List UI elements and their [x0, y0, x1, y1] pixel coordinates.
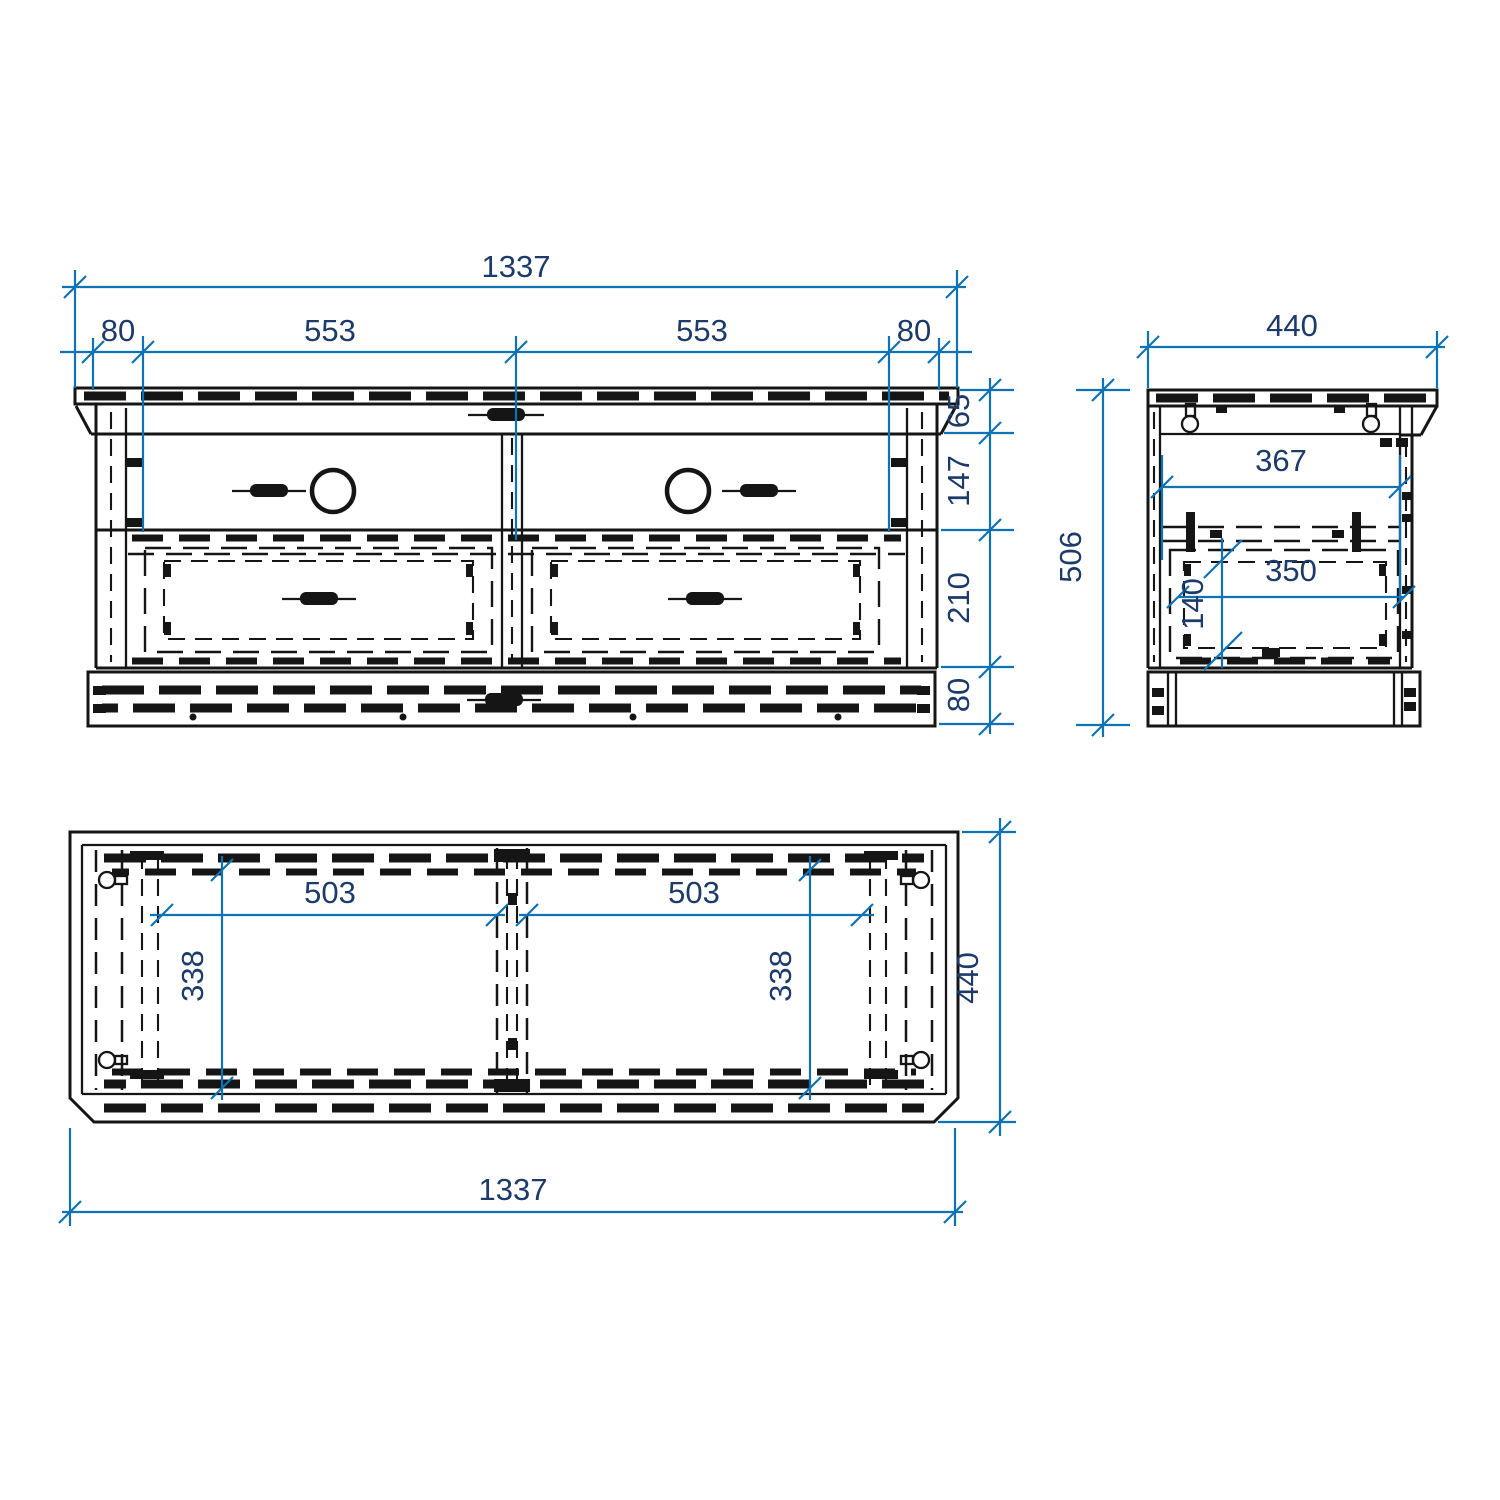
dim-top-left-bay-depth: 338: [175, 950, 210, 1002]
top-view: 503 503 338 338 440: [59, 818, 1016, 1226]
top-dim-right-bay-width: 503: [516, 875, 874, 926]
front-upper-compartments: [232, 470, 796, 512]
dim-side-drawer-inner-height: 140: [1175, 578, 1210, 630]
side-hanger-fittings: [1182, 404, 1379, 432]
dim-front-upper-height: 147: [941, 455, 976, 507]
dim-front-left-bay: 553: [304, 313, 356, 348]
cam-fitting-drawer-left: [282, 592, 356, 605]
dim-front-right-bay: 553: [676, 313, 728, 348]
cable-grommet-left: [312, 470, 354, 512]
front-drawer-left: [145, 548, 492, 652]
dim-side-depth: 440: [1266, 308, 1318, 343]
top-center-divider: [494, 848, 530, 1094]
front-plinth: [88, 672, 935, 726]
keyhole-hanger-right: [1363, 404, 1379, 432]
front-view: 1337 80 553 553 80: [60, 249, 1014, 735]
keyhole-hanger-left: [1182, 404, 1198, 432]
front-dim-heights: 65 147 210 80: [939, 378, 1014, 735]
dim-front-right-offset: 80: [897, 313, 931, 348]
cable-grommet-right: [667, 470, 709, 512]
front-dim-segments: 80 553 553 80: [60, 313, 972, 540]
dim-front-plinth-height: 80: [941, 678, 976, 712]
dim-overall-height: 506: [1053, 378, 1130, 737]
dim-side-height: 506: [1053, 531, 1088, 583]
cam-fitting-drawer-right: [668, 592, 742, 605]
dim-front-top-height: 65: [941, 394, 976, 428]
dim-side-inner-depth: 367: [1255, 443, 1307, 478]
dim-front-left-offset: 80: [101, 313, 135, 348]
front-center-divider: [502, 434, 522, 667]
side-plinth: [1148, 672, 1420, 726]
side-dim-drawer-inner-height: 140: [1175, 538, 1242, 670]
cabinet-technical-drawing: 1337 80 553 553 80: [0, 0, 1500, 1500]
cam-fitting-right-bay: [722, 484, 796, 497]
side-view: 440 367 350 140: [1137, 308, 1448, 726]
cam-fitting-top-center: [468, 408, 544, 421]
top-dim-overall-width: 1337: [59, 1128, 966, 1226]
top-dim-left-bay-width: 503: [150, 875, 508, 926]
cam-fitting-left-bay: [232, 484, 306, 497]
side-top-panel: [1148, 390, 1437, 435]
side-shelf-hidden: [1160, 512, 1400, 552]
dim-top-depth: 440: [950, 952, 985, 1004]
dim-front-overall-width: 1337: [482, 249, 551, 284]
top-dim-right-bay-depth: 338: [763, 856, 821, 1100]
top-dim-left-bay-depth: 338: [175, 856, 233, 1100]
dim-top-left-bay-width: 503: [304, 875, 356, 910]
front-bottom-rail: [96, 661, 937, 668]
dim-side-drawer-depth: 350: [1265, 553, 1317, 588]
dim-top-right-bay-width: 503: [668, 875, 720, 910]
dim-top-right-bay-depth: 338: [763, 950, 798, 1002]
dim-top-overall-width: 1337: [479, 1172, 548, 1207]
top-dim-depth: 440: [938, 818, 1016, 1136]
front-drawer-right: [532, 548, 879, 652]
side-dim-depth: 440: [1137, 308, 1448, 388]
dim-front-drawer-height: 210: [941, 572, 976, 624]
